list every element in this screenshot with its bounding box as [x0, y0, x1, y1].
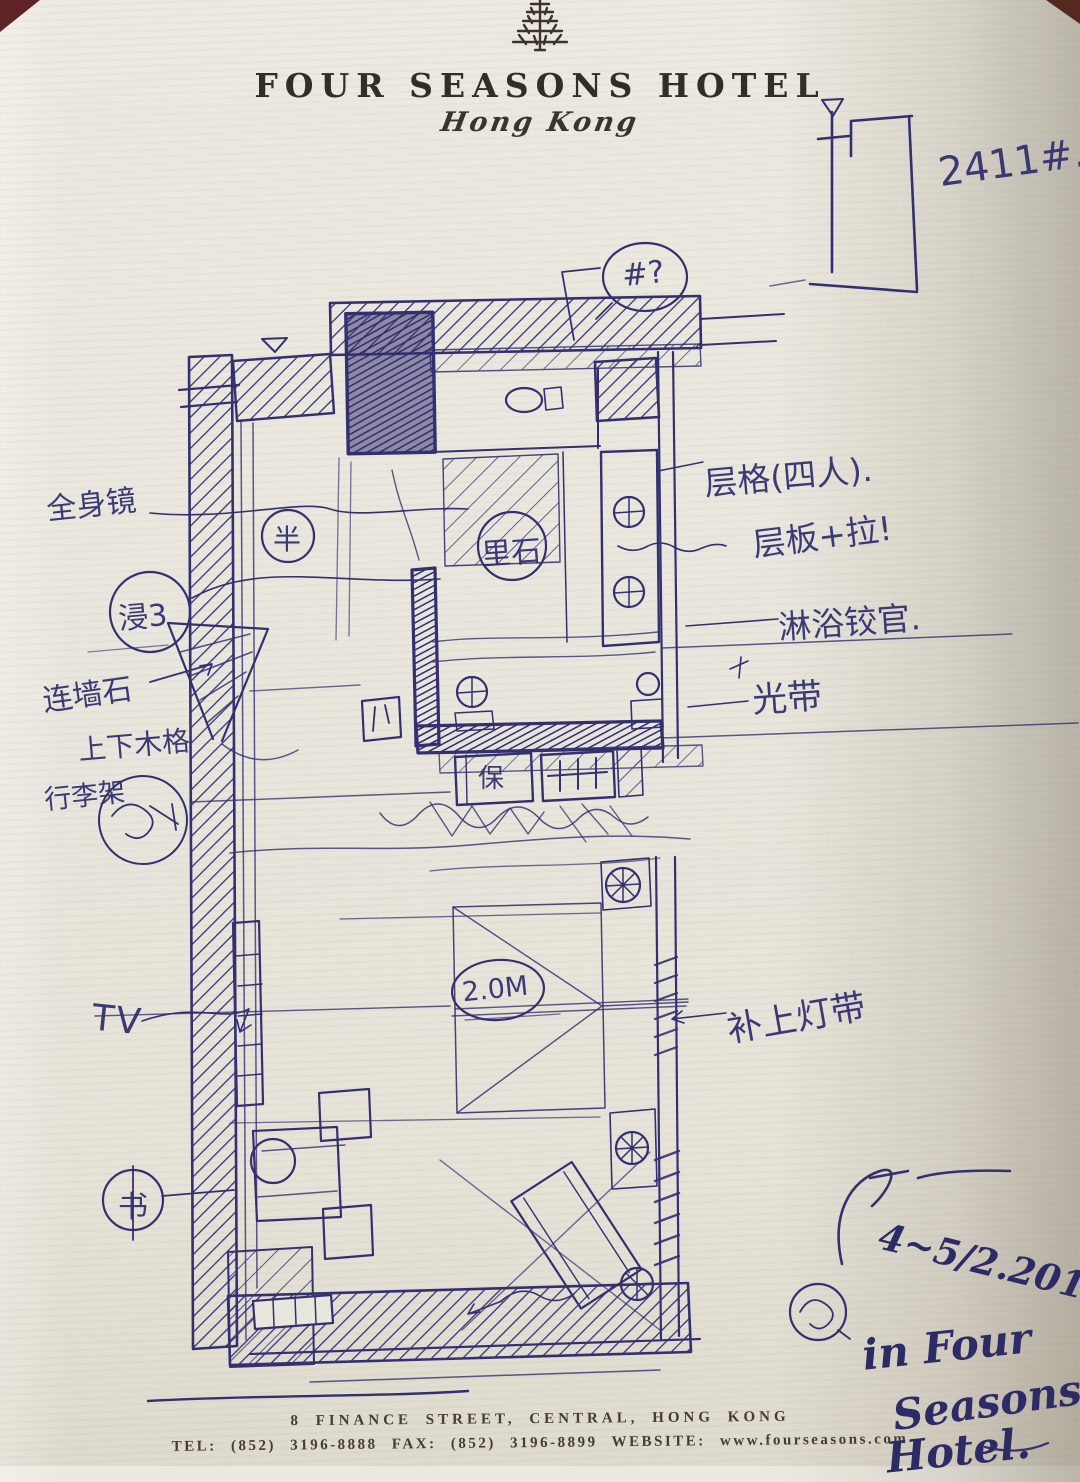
note-tv: TV [90, 997, 145, 1043]
bottom-wall [148, 1247, 700, 1401]
zone-label-b: 里石 [480, 526, 543, 574]
note-mirror: 全身镜 [44, 475, 138, 528]
bathroom [412, 352, 703, 773]
note-desk: 书 [118, 1182, 148, 1226]
stationery-page: { "colors": { "paper": "#e9e6dd", "ink":… [0, 0, 1080, 1466]
desk-area [251, 1089, 373, 1259]
zone-label-c: 浸3 [116, 590, 169, 638]
note-lightband: 光带 [750, 668, 823, 724]
zone-label-a: 半 [273, 518, 301, 558]
note-shower: 淋浴铰官. [776, 591, 922, 649]
entry-walls [233, 296, 784, 454]
note-safe: 保 [478, 758, 504, 795]
detail-sketch [770, 99, 917, 292]
note-query-mark: #? [620, 254, 666, 294]
